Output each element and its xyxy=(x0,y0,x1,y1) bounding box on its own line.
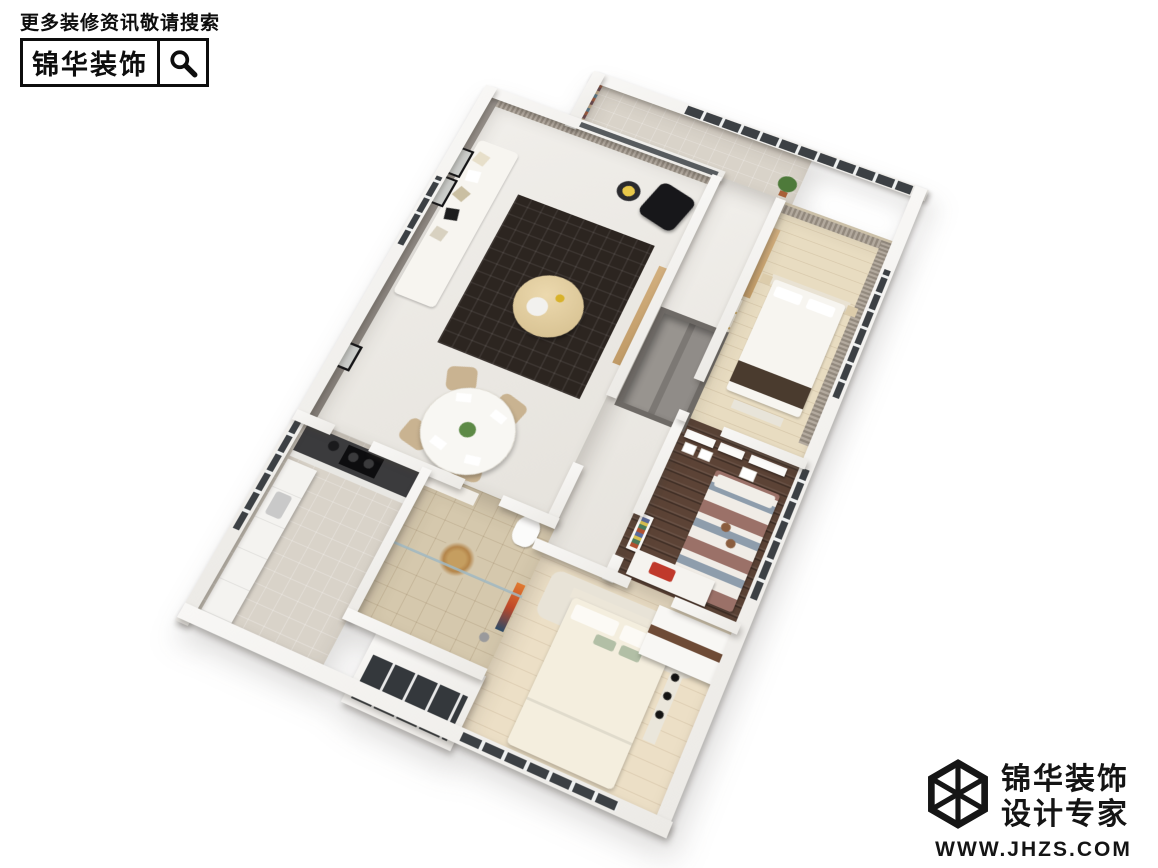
brand-search-box: 锦华装饰 xyxy=(20,38,209,87)
magnifier-icon xyxy=(157,41,206,84)
brand-subtitle: 设计专家 xyxy=(1001,797,1129,832)
brand-name: 锦华装饰 xyxy=(23,41,157,84)
search-tagline: 更多装修资讯敬请搜索 xyxy=(20,8,220,35)
brand-name-bottom: 锦华装饰 xyxy=(1001,762,1129,797)
sofa-pillow xyxy=(444,208,460,221)
watermark-search-hint: 更多装修资讯敬请搜索 锦华装饰 xyxy=(20,8,220,87)
apartment-render-image: 更多装修资讯敬请搜索 锦华装饰 xyxy=(0,0,1158,868)
website-url: WWW.JHZS.COM xyxy=(921,838,1146,862)
floorplan-3d xyxy=(136,28,948,868)
hex-cube-logo-icon xyxy=(921,757,995,836)
placemat xyxy=(455,393,471,403)
brand-text: 锦华装饰 设计专家 xyxy=(1001,762,1129,832)
watermark-logo-block: 锦华装饰 设计专家 WWW.JHZS.COM xyxy=(921,757,1146,862)
logo-row: 锦华装饰 设计专家 xyxy=(921,757,1146,836)
